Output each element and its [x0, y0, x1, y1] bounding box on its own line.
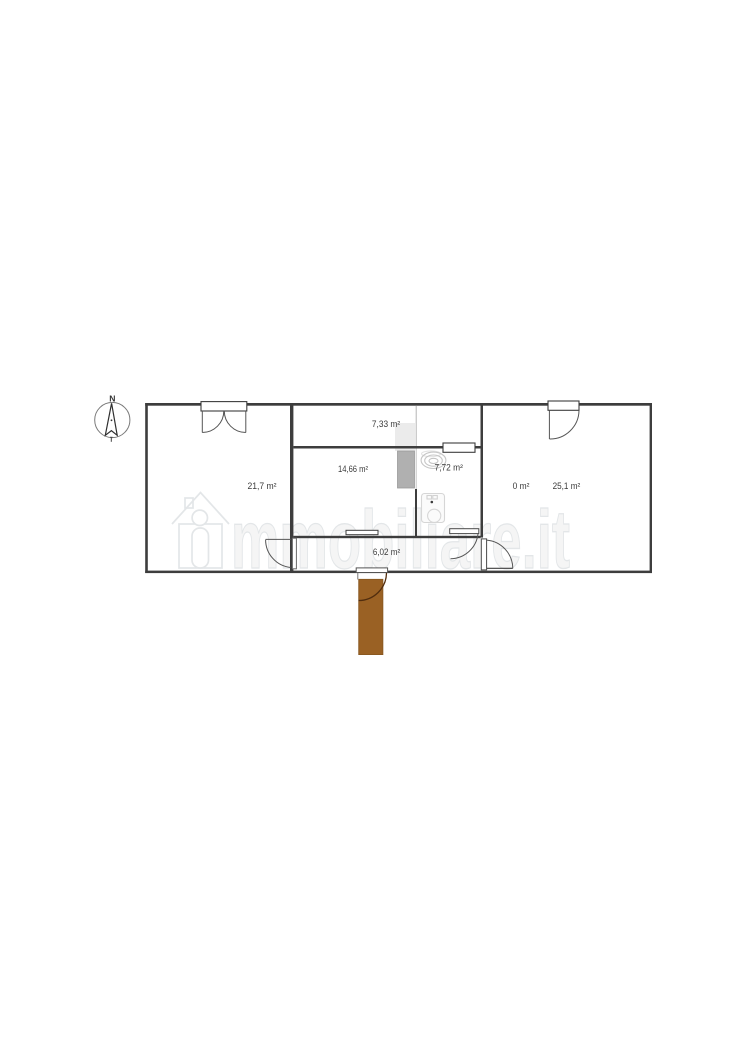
svg-text:6,02 m²: 6,02 m² [373, 547, 400, 557]
svg-text:25,1 m²: 25,1 m² [553, 481, 581, 491]
svg-text:7,33 m²: 7,33 m² [372, 419, 400, 429]
svg-text:21,7 m²: 21,7 m² [247, 481, 276, 491]
svg-text:7,72 m²: 7,72 m² [435, 462, 463, 472]
svg-text:0 m²: 0 m² [513, 481, 530, 491]
svg-text:14,66 m²: 14,66 m² [338, 464, 368, 474]
svg-text:N: N [109, 394, 115, 404]
